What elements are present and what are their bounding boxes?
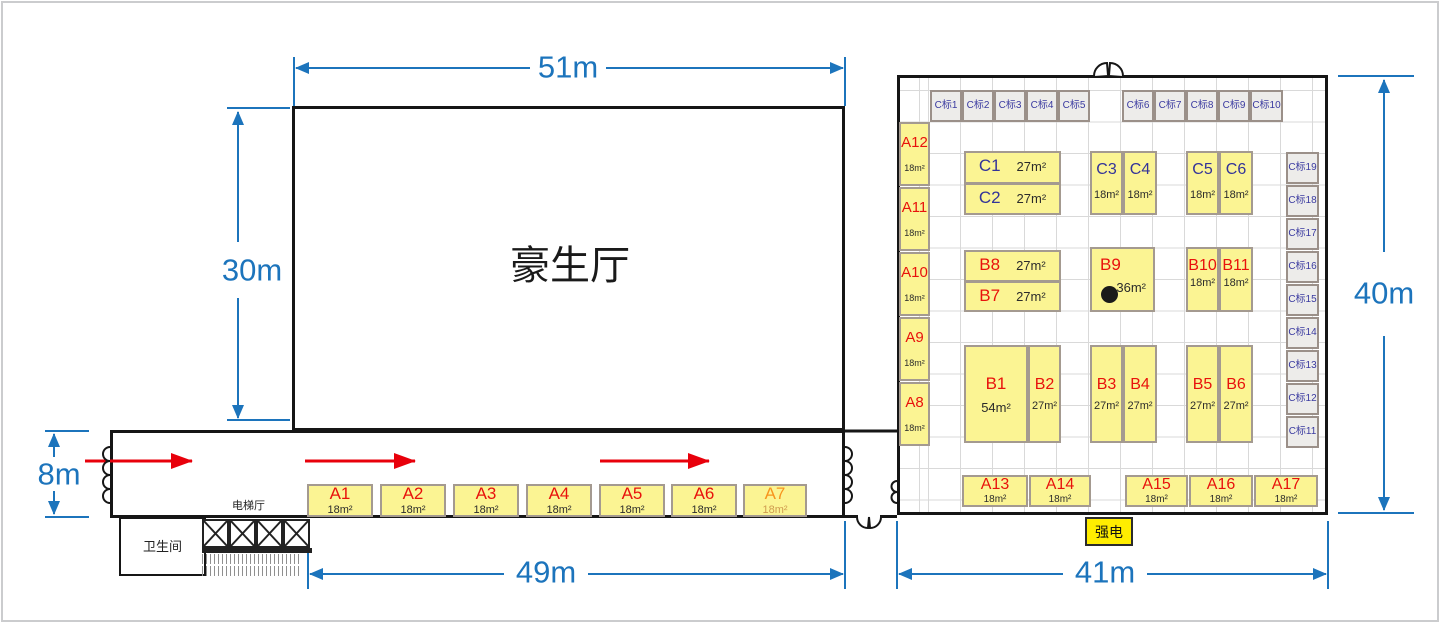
booth-a12: A12 18m² bbox=[899, 122, 930, 186]
booth-b11: B11 18m² bbox=[1219, 247, 1253, 312]
std-booth-c12: C标12 bbox=[1286, 383, 1319, 415]
std-booth-c18: C标18 bbox=[1286, 185, 1319, 217]
booth-b4: B4 27m² bbox=[1123, 345, 1157, 443]
std-booth-c17: C标17 bbox=[1286, 218, 1319, 250]
booth-a14: A14 18m² bbox=[1029, 475, 1091, 507]
std-booth-c6: C标6 bbox=[1122, 90, 1154, 122]
corridor-right-door bbox=[845, 447, 852, 503]
booth-a13: A13 18m² bbox=[962, 475, 1028, 507]
dimension-right: 40m bbox=[1354, 278, 1414, 309]
std-booth-c9: C标9 bbox=[1218, 90, 1250, 122]
booth-b5: B5 27m² bbox=[1186, 345, 1219, 443]
vestibule-walls bbox=[845, 431, 897, 517]
dimension-hall-left: 30m bbox=[222, 255, 282, 286]
booth-b1: B1 54m² bbox=[964, 345, 1028, 443]
booth-c4: C4 18m² bbox=[1123, 151, 1157, 215]
booth-a17: A17 18m² bbox=[1254, 475, 1318, 507]
booth-b6: B6 27m² bbox=[1219, 345, 1253, 443]
booth-b8: B8 27m² bbox=[964, 250, 1061, 282]
std-booth-c19: C标19 bbox=[1286, 152, 1319, 184]
booth-a3: A3 18m² bbox=[453, 484, 519, 517]
booth-b3: B3 27m² bbox=[1090, 345, 1123, 443]
std-booth-c13: C标13 bbox=[1286, 350, 1319, 382]
booth-a7: A7 18m² bbox=[743, 484, 807, 517]
std-booth-c1: C标1 bbox=[930, 90, 962, 122]
booth-b10: B10 18m² bbox=[1186, 247, 1219, 312]
booth-a15: A15 18m² bbox=[1125, 475, 1188, 507]
elevator-wall-bar bbox=[202, 548, 312, 553]
dimension-top: 51m bbox=[538, 52, 598, 83]
dimension-entry-left: 8m bbox=[37, 459, 80, 490]
left-entry-door bbox=[103, 447, 110, 503]
booth-a1: A1 18m² bbox=[307, 484, 373, 517]
restroom: 卫生间 bbox=[119, 517, 206, 576]
booth-a5: A5 18m² bbox=[599, 484, 665, 517]
vestibule-bottom-door bbox=[857, 517, 881, 528]
std-booth-c15: C标15 bbox=[1286, 284, 1319, 316]
booth-a8: A8 18m² bbox=[899, 382, 930, 446]
booth-c6: C6 18m² bbox=[1219, 151, 1253, 215]
std-booth-c2: C标2 bbox=[962, 90, 994, 122]
booth-b2: B2 27m² bbox=[1028, 345, 1061, 443]
std-booth-c7: C标7 bbox=[1154, 90, 1186, 122]
dimension-bottom-right: 41m bbox=[1075, 557, 1135, 588]
booth-b7: B7 27m² bbox=[964, 281, 1061, 312]
std-booth-c14: C标14 bbox=[1286, 317, 1319, 349]
booth-a2: A2 18m² bbox=[380, 484, 446, 517]
elevator-hall-label: 电梯厅 bbox=[232, 501, 265, 512]
std-booth-c16: C标16 bbox=[1286, 251, 1319, 283]
booth-a9: A9 18m² bbox=[899, 317, 930, 381]
power-box: 强电 bbox=[1085, 517, 1133, 546]
std-booth-c10: C标10 bbox=[1250, 90, 1283, 122]
std-booth-c4: C标4 bbox=[1026, 90, 1058, 122]
hall-title: 豪生厅 bbox=[510, 246, 630, 286]
booth-a16: A16 18m² bbox=[1189, 475, 1253, 507]
booth-c5: C5 18m² bbox=[1186, 151, 1219, 215]
stairs-hatch bbox=[202, 566, 302, 576]
std-booth-c3: C标3 bbox=[994, 90, 1026, 122]
booth-c2: C2 27m² bbox=[964, 183, 1061, 215]
booth-a11: A11 18m² bbox=[899, 187, 930, 251]
dim-49m-lines bbox=[308, 521, 845, 589]
booth-c3: C3 18m² bbox=[1090, 151, 1123, 215]
std-booth-c8: C标8 bbox=[1186, 90, 1218, 122]
std-booth-c5: C标5 bbox=[1058, 90, 1090, 122]
dimension-bottom-left: 49m bbox=[516, 557, 576, 588]
std-booth-c11: C标11 bbox=[1286, 416, 1319, 448]
booth-c1: C1 27m² bbox=[964, 151, 1061, 184]
pillar-dot bbox=[1101, 286, 1118, 303]
restroom-label: 卫生间 bbox=[121, 519, 204, 574]
elevator-shafts bbox=[202, 520, 312, 553]
booth-b9: B9 36m² bbox=[1090, 247, 1155, 312]
stairs-hatch bbox=[202, 554, 302, 564]
booth-a10: A10 18m² bbox=[899, 252, 930, 316]
booth-a4: A4 18m² bbox=[526, 484, 592, 517]
floor-plan: 豪生厅 卫生间 电梯厅 A1 18m² A2 18m² A3 18m² A4 1… bbox=[0, 0, 1440, 623]
booth-a6: A6 18m² bbox=[671, 484, 737, 517]
